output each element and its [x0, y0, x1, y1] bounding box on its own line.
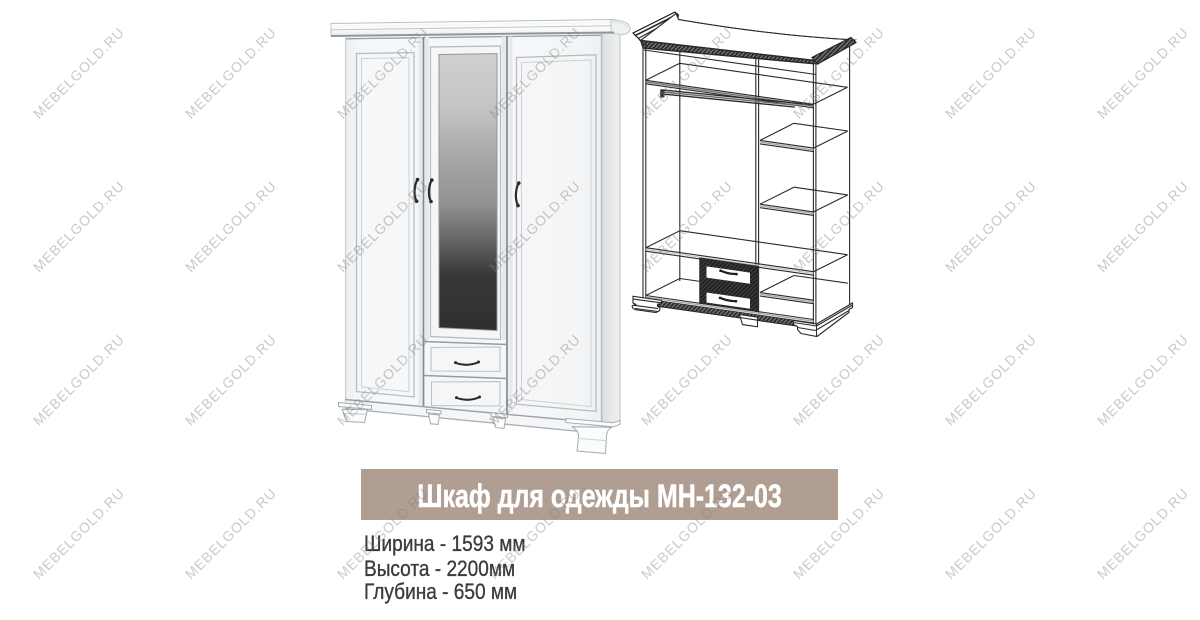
svg-text:MEBELGOLD.RU: MEBELGOLD.RU	[182, 24, 280, 122]
svg-text:MEBELGOLD.RU: MEBELGOLD.RU	[30, 331, 128, 429]
svg-text:MEBELGOLD.RU: MEBELGOLD.RU	[942, 331, 1040, 429]
svg-text:MEBELGOLD.RU: MEBELGOLD.RU	[942, 484, 1040, 582]
svg-text:MEBELGOLD.RU: MEBELGOLD.RU	[334, 484, 432, 582]
svg-text:MEBELGOLD.RU: MEBELGOLD.RU	[790, 331, 888, 429]
svg-text:MEBELGOLD.RU: MEBELGOLD.RU	[1094, 484, 1192, 582]
svg-text:MEBELGOLD.RU: MEBELGOLD.RU	[790, 24, 888, 122]
svg-text:MEBELGOLD.RU: MEBELGOLD.RU	[638, 177, 736, 275]
svg-text:MEBELGOLD.RU: MEBELGOLD.RU	[182, 331, 280, 429]
svg-text:MEBELGOLD.RU: MEBELGOLD.RU	[30, 177, 128, 275]
svg-text:MEBELGOLD.RU: MEBELGOLD.RU	[790, 177, 888, 275]
svg-text:MEBELGOLD.RU: MEBELGOLD.RU	[1094, 177, 1192, 275]
svg-text:MEBELGOLD.RU: MEBELGOLD.RU	[334, 177, 432, 275]
svg-text:MEBELGOLD.RU: MEBELGOLD.RU	[1094, 24, 1192, 122]
svg-text:MEBELGOLD.RU: MEBELGOLD.RU	[182, 177, 280, 275]
svg-text:MEBELGOLD.RU: MEBELGOLD.RU	[638, 24, 736, 122]
svg-text:MEBELGOLD.RU: MEBELGOLD.RU	[1094, 331, 1192, 429]
svg-text:MEBELGOLD.RU: MEBELGOLD.RU	[638, 484, 736, 582]
svg-text:MEBELGOLD.RU: MEBELGOLD.RU	[334, 24, 432, 122]
svg-text:MEBELGOLD.RU: MEBELGOLD.RU	[182, 484, 280, 582]
svg-text:MEBELGOLD.RU: MEBELGOLD.RU	[638, 331, 736, 429]
svg-text:MEBELGOLD.RU: MEBELGOLD.RU	[30, 484, 128, 582]
svg-text:MEBELGOLD.RU: MEBELGOLD.RU	[942, 177, 1040, 275]
svg-text:MEBELGOLD.RU: MEBELGOLD.RU	[30, 24, 128, 122]
svg-text:MEBELGOLD.RU: MEBELGOLD.RU	[942, 24, 1040, 122]
svg-text:MEBELGOLD.RU: MEBELGOLD.RU	[486, 331, 584, 429]
svg-text:MEBELGOLD.RU: MEBELGOLD.RU	[790, 484, 888, 582]
svg-text:MEBELGOLD.RU: MEBELGOLD.RU	[486, 484, 584, 582]
svg-text:MEBELGOLD.RU: MEBELGOLD.RU	[486, 177, 584, 275]
svg-text:MEBELGOLD.RU: MEBELGOLD.RU	[486, 24, 584, 122]
svg-text:MEBELGOLD.RU: MEBELGOLD.RU	[334, 331, 432, 429]
